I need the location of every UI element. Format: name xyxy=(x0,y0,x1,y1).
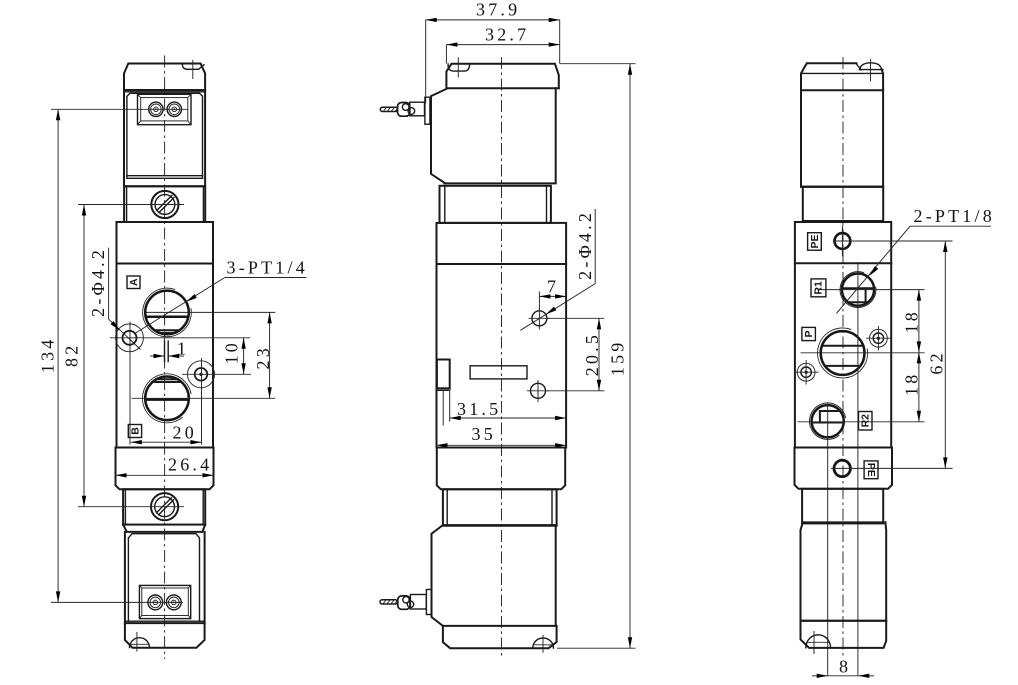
svg-text:R2: R2 xyxy=(860,414,872,428)
svg-text:18: 18 xyxy=(902,372,922,396)
svg-text:3-PT1/4: 3-PT1/4 xyxy=(227,258,308,278)
svg-text:23: 23 xyxy=(253,345,273,369)
svg-text:10: 10 xyxy=(222,340,242,364)
svg-text:PE: PE xyxy=(809,234,821,248)
svg-text:7: 7 xyxy=(547,277,559,297)
svg-text:8: 8 xyxy=(839,657,851,677)
svg-text:B: B xyxy=(130,427,142,435)
svg-text:32.7: 32.7 xyxy=(485,25,529,45)
svg-text:2-PT1/8: 2-PT1/8 xyxy=(914,206,995,226)
svg-text:A: A xyxy=(128,278,140,286)
svg-text:P: P xyxy=(803,330,815,337)
svg-text:26.4: 26.4 xyxy=(168,455,212,475)
svg-text:62: 62 xyxy=(927,350,947,374)
svg-text:2-Φ4.2: 2-Φ4.2 xyxy=(575,210,595,280)
svg-text:20.5: 20.5 xyxy=(582,332,602,376)
svg-text:1: 1 xyxy=(177,339,189,359)
svg-text:35: 35 xyxy=(472,424,496,444)
svg-text:159: 159 xyxy=(608,339,628,376)
svg-text:82: 82 xyxy=(62,343,82,367)
svg-text:20: 20 xyxy=(173,423,197,443)
svg-text:PE: PE xyxy=(865,463,877,477)
svg-text:37.9: 37.9 xyxy=(476,0,520,20)
svg-text:2-Φ4.2: 2-Φ4.2 xyxy=(88,247,108,317)
svg-text:18: 18 xyxy=(902,309,922,333)
svg-text:R1: R1 xyxy=(812,281,824,295)
svg-text:31.5: 31.5 xyxy=(457,399,501,419)
svg-text:134: 134 xyxy=(37,336,57,373)
